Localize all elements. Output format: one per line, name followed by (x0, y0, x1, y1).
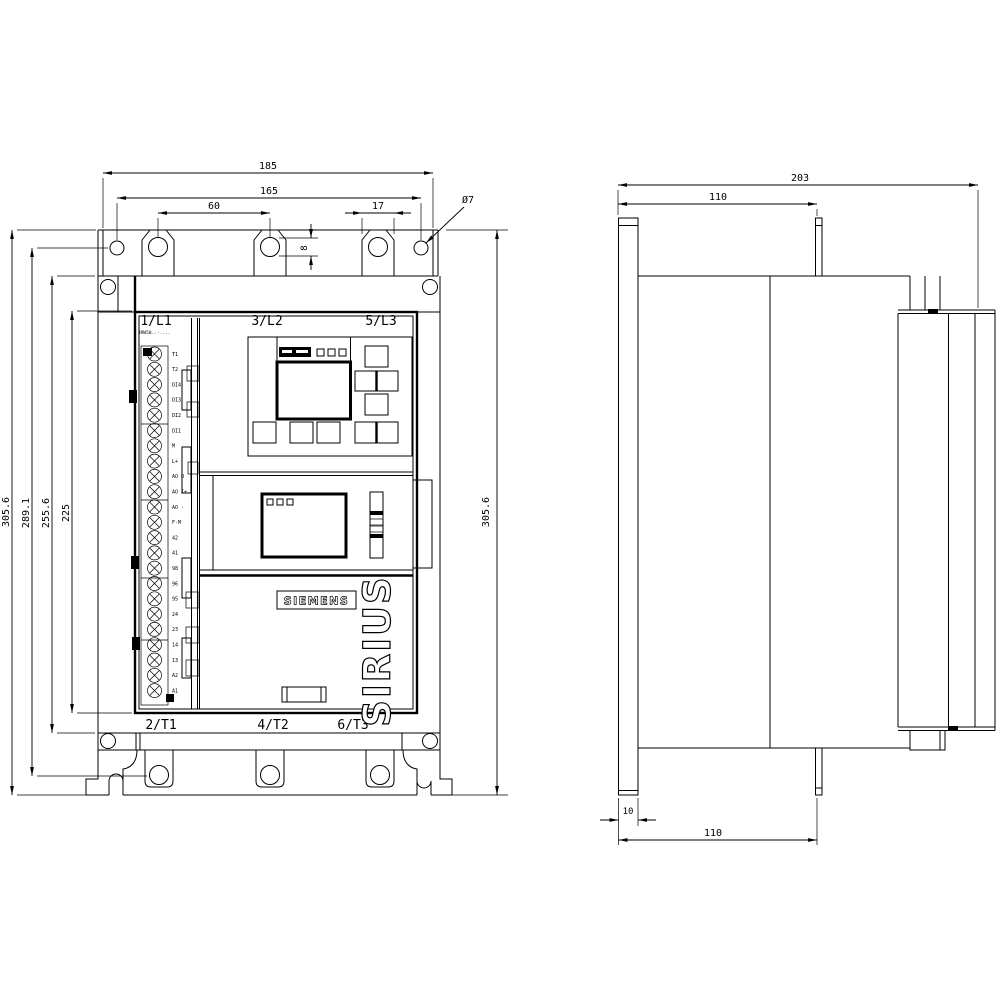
mounting-foot (366, 750, 394, 787)
dim-height-inner: 225 (61, 504, 72, 522)
hmi-module (248, 337, 412, 456)
front-feet-bottom (86, 750, 452, 795)
led-indicator (317, 349, 324, 356)
dim-side-height: 305.6 (481, 497, 492, 527)
terminal-label: F-M (172, 520, 181, 526)
dimension-drawing: 185 165 60 17 Ø7 8 305.6 (0, 0, 1000, 1000)
front-panel: 1/L1 3/L2 5/L3 3RW50..-.... 2/T1 4/T2 6/… (129, 312, 432, 733)
clip-mark (928, 309, 938, 313)
panel-rail (182, 318, 200, 709)
corner-foot (440, 750, 452, 795)
mounting-foot (256, 750, 284, 787)
connector-block (132, 637, 140, 650)
top-tab (816, 218, 823, 276)
mounting-hole (414, 241, 428, 255)
dim-flange: 10 (623, 807, 634, 817)
module-window (262, 494, 346, 557)
clip-mark (948, 726, 958, 730)
mounting-hole (149, 238, 168, 257)
led-indicator (339, 349, 346, 356)
dim-depth-overall: 203 (791, 173, 809, 184)
terminal-label-2T1: 2/T1 (145, 718, 176, 733)
terminal-label: L+ (172, 459, 178, 465)
terminal-label: 98 (172, 566, 178, 572)
handle (282, 687, 326, 702)
module-led (267, 499, 273, 505)
dim-height-overall: 305.6 (1, 497, 12, 527)
terminal-label: A2 (172, 673, 178, 679)
dim-height-holes: 289.1 (21, 498, 32, 528)
connector-block (129, 390, 137, 403)
dim-width-holes: 165 (260, 186, 278, 197)
dim-depth-top: 110 (709, 192, 727, 203)
terminal-label: 96 (172, 581, 178, 587)
terminal-label: DI2 (172, 413, 181, 419)
side-outline (619, 218, 996, 795)
module-led (277, 499, 283, 505)
terminal-label: 24 (172, 612, 178, 618)
brand-label: SIEMENS (284, 595, 350, 608)
hmi-bezel (248, 337, 412, 456)
mounting-hole (261, 238, 280, 257)
mounting-hole (261, 766, 280, 785)
hmi-display (277, 362, 351, 419)
hmi-button (317, 422, 340, 443)
side-view: 203 110 10 110 (600, 173, 995, 845)
terminal-label: 14 (172, 643, 178, 649)
terminal-label: 13 (172, 658, 178, 664)
mounting-tab (362, 230, 394, 276)
front-view: 185 165 60 17 Ø7 8 305.6 (1, 161, 508, 795)
mounting-foot (145, 750, 173, 787)
badge-glyphs (296, 350, 308, 353)
terminal-label: 95 (172, 597, 178, 603)
dim-slot-width: 17 (372, 201, 384, 212)
dim-height-body: 255.6 (41, 498, 52, 528)
foot-curve (403, 750, 417, 781)
hmi-button (365, 346, 388, 367)
badge-glyphs (282, 350, 292, 353)
front-mounting-strip-top (98, 230, 438, 276)
foot-slot (109, 774, 123, 795)
terminal-label: 41 (172, 551, 178, 557)
terminal-label-3L2: 3/L2 (251, 314, 282, 329)
led-indicator (328, 349, 335, 356)
terminal-label: T1 (172, 352, 178, 358)
terminal-label: DI3 (172, 398, 181, 404)
corner-screw-hole (423, 734, 438, 749)
connector-block (131, 556, 139, 569)
dimension-drawing-page: 185 165 60 17 Ø7 8 305.6 (0, 0, 1000, 1000)
product-label: SIRIUS (356, 575, 399, 726)
mounting-hole (371, 766, 390, 785)
dim-depth-bottom: 110 (704, 828, 722, 839)
corner-screw-hole (101, 280, 116, 295)
mounting-hole (369, 238, 388, 257)
terminal-label: T2 (172, 367, 178, 373)
front-dimensions-left: 305.6 289.1 255.6 225 (1, 230, 147, 795)
front-dimension-right: 305.6 (446, 230, 508, 795)
terminal-label-1L1: 1/L1 (140, 314, 171, 329)
hmi-button (253, 422, 276, 443)
dim-hole-dia: Ø7 (462, 194, 474, 206)
dim-slot-height: 8 (300, 245, 310, 250)
terminal-label-5L3: 5/L3 (365, 314, 396, 329)
mounting-hole (150, 766, 169, 785)
corner-foot (86, 750, 98, 795)
corner-screw-hole (101, 734, 116, 749)
terminal-label: A1 (172, 688, 178, 694)
foot-slot (417, 781, 431, 795)
side-latch (417, 480, 432, 568)
terminal-label-4T2: 4/T2 (257, 718, 288, 733)
dim-width-overall: 185 (259, 161, 277, 172)
terminal-label: 42 (172, 535, 178, 541)
connector-block (166, 694, 174, 702)
module-dividers (200, 472, 414, 576)
front-dimensions-top: 185 165 60 17 Ø7 8 (103, 161, 474, 270)
module-led (287, 499, 293, 505)
corner-screw-hole (423, 280, 438, 295)
type-label: 3RW50..-.... (138, 330, 171, 336)
mounting-hole (110, 241, 124, 255)
side-dimensions: 203 110 10 110 (600, 173, 978, 845)
dim-hole-pitch: 60 (208, 201, 220, 212)
hmi-button (365, 394, 388, 415)
terminal-label: AO - (172, 505, 184, 511)
field-module (262, 480, 432, 568)
terminal-label: DI1 (172, 428, 181, 434)
terminal-label: DI4 (172, 382, 181, 388)
hmi-button (290, 422, 313, 443)
terminal-label: 23 (172, 627, 178, 633)
branding: SIEMENS SIRIUS (277, 575, 399, 726)
mounting-flange (619, 218, 639, 795)
terminal-label: M (172, 444, 175, 450)
